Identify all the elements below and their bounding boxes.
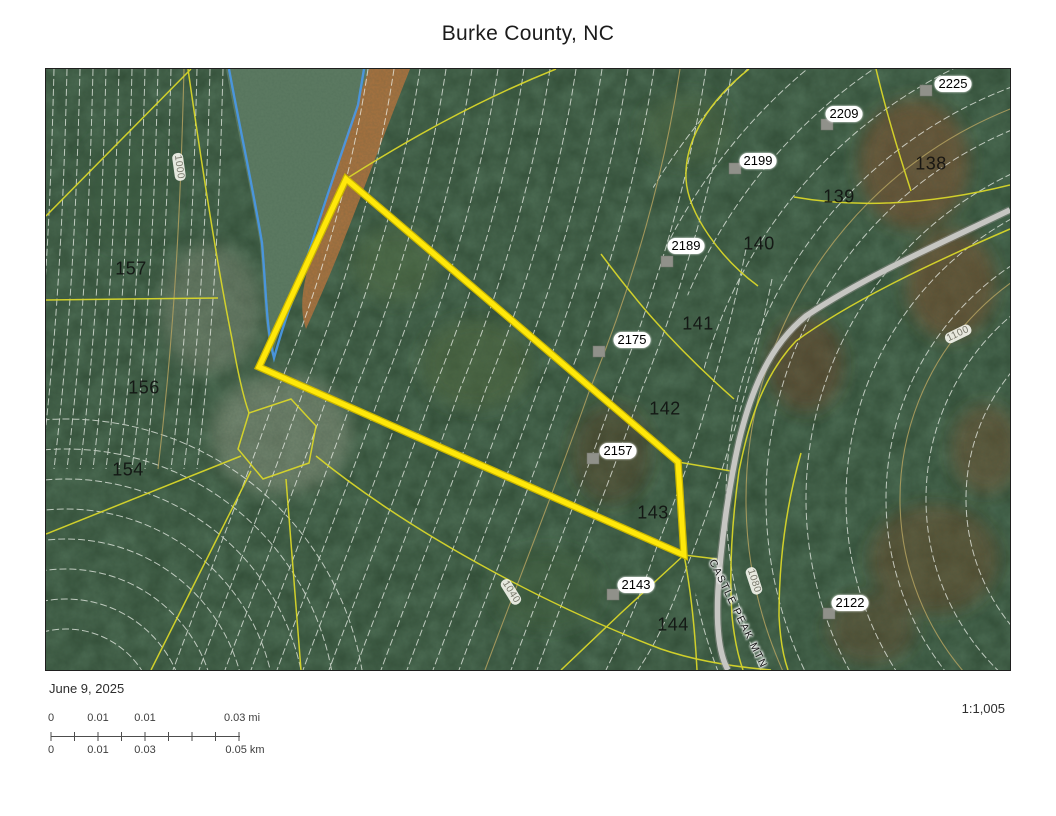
scale-ratio: 1:1,005 (962, 701, 1005, 716)
lot-label: 157 (115, 259, 147, 280)
lot-label: 141 (682, 314, 714, 335)
speckle-texture (46, 69, 1010, 670)
scalebar-ticks (50, 729, 300, 743)
lot-label: 154 (112, 460, 144, 481)
scalebar-label: 0.01 (87, 712, 108, 724)
lot-label: 139 (823, 187, 855, 208)
aerial-map (46, 69, 1010, 670)
map-frame: 1000 1040 1080 1100 CASTLE PEAK MTN 138 … (45, 68, 1011, 671)
address-label: 2122 (832, 595, 869, 611)
address-label: 2225 (935, 76, 972, 92)
address-label: 2157 (600, 443, 637, 459)
lot-label: 142 (649, 399, 681, 420)
map-date: June 9, 2025 (49, 681, 124, 696)
scalebar-label: 0.05 km (225, 744, 264, 756)
lot-label: 138 (915, 154, 947, 175)
scalebar-label: 0.03 (134, 744, 155, 756)
lot-label: 156 (128, 378, 160, 399)
scalebar-label: 0.03 mi (224, 712, 260, 724)
address-label: 2209 (826, 106, 863, 122)
scalebar-label: 0.01 (134, 712, 155, 724)
scalebar-label: 0.01 (87, 744, 108, 756)
lot-label: 140 (743, 234, 775, 255)
scalebar-label: 0 (48, 712, 54, 724)
scalebar-label: 0 (48, 744, 54, 756)
page-title: Burke County, NC (0, 22, 1056, 46)
address-label: 2199 (740, 153, 777, 169)
lot-label: 143 (637, 503, 669, 524)
address-label: 2189 (668, 238, 705, 254)
address-label: 2143 (618, 577, 655, 593)
address-label: 2175 (614, 332, 651, 348)
lot-label: 144 (657, 615, 689, 636)
